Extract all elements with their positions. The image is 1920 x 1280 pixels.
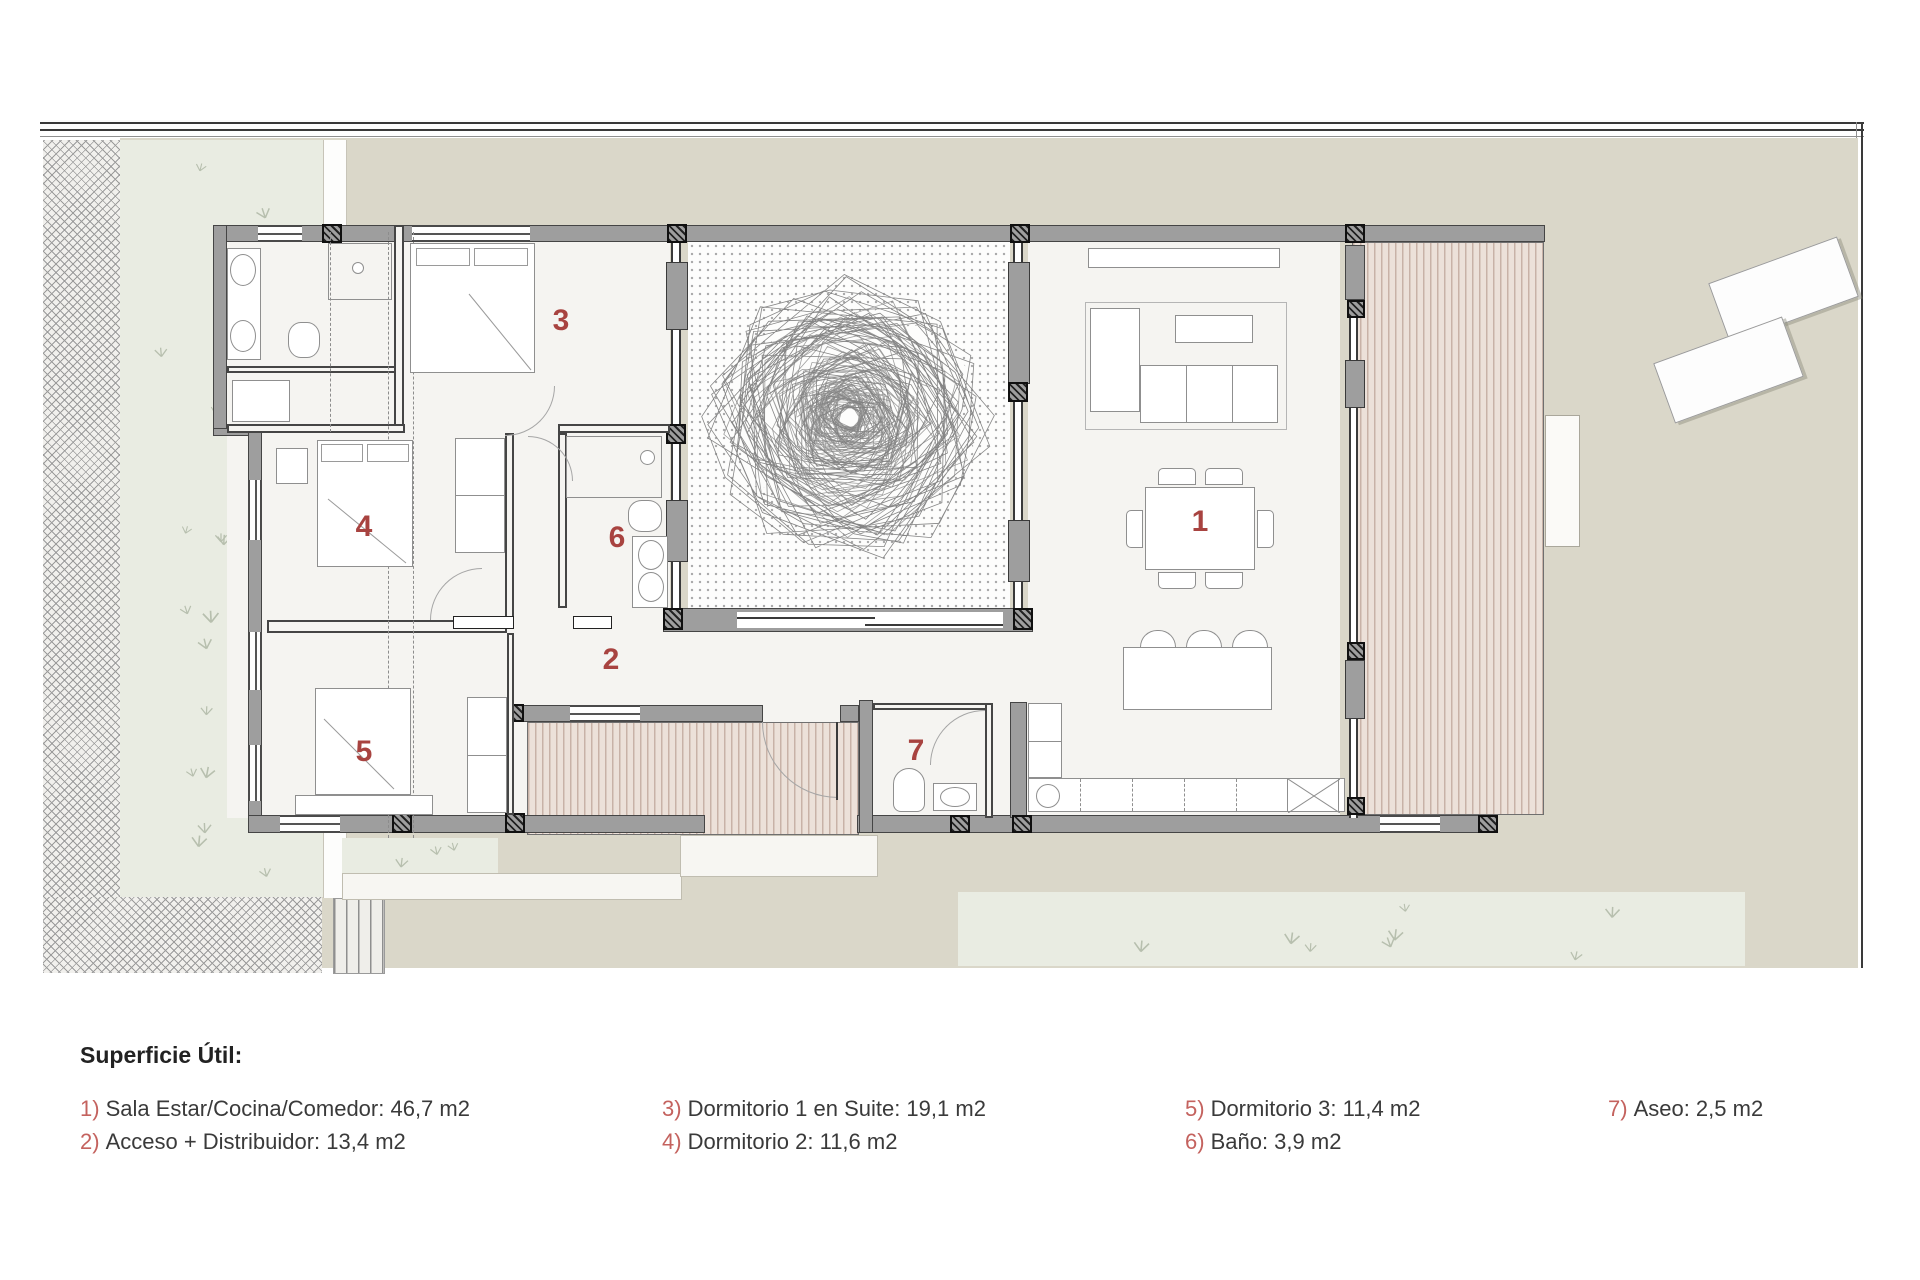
courtyard-slider-rail-1 bbox=[737, 617, 875, 619]
pillow-bedroom1-b bbox=[474, 248, 528, 266]
coffee-table bbox=[1175, 315, 1253, 343]
legend-entry-1: 1)Sala Estar/Cocina/Comedor: 46,7 m2 bbox=[80, 1096, 470, 1122]
partition-ensuite-bottom bbox=[227, 366, 396, 373]
sink-bath-2 bbox=[638, 572, 664, 602]
room-label-bedroom2: 4 bbox=[356, 510, 373, 544]
wardrobe-bedroom3 bbox=[467, 697, 507, 813]
wall-entry-stub bbox=[840, 705, 859, 722]
dining-chair-4 bbox=[1205, 572, 1243, 589]
column-courtyard-right-bottom bbox=[1013, 608, 1033, 630]
closet-ensuite bbox=[232, 380, 290, 422]
pillow-bedroom2-a bbox=[321, 444, 363, 462]
dining-chair-1 bbox=[1158, 468, 1196, 485]
legend-entry-5-text: Dormitorio 3: 11,4 m2 bbox=[1211, 1096, 1421, 1121]
mullion-living-right-1 bbox=[1345, 360, 1365, 408]
legend-entry-1-text: Sala Estar/Cocina/Comedor: 46,7 m2 bbox=[106, 1096, 470, 1121]
legend-entry-6-text: Baño: 3,9 m2 bbox=[1211, 1129, 1342, 1154]
legend-entry-2-number: 2) bbox=[80, 1129, 100, 1154]
door-leaf-entry bbox=[836, 722, 838, 800]
shower-bath bbox=[566, 436, 662, 498]
legend-entry-5: 5)Dormitorio 3: 11,4 m2 bbox=[1185, 1096, 1420, 1122]
pocket-door-hall bbox=[573, 616, 612, 629]
sofa-seats bbox=[1140, 365, 1278, 423]
room-label-bedroom3: 5 bbox=[356, 735, 373, 769]
column-top-1 bbox=[322, 224, 342, 243]
sink-wc bbox=[940, 787, 970, 807]
apron-entry bbox=[680, 835, 878, 877]
mullion-courtyard-right-1 bbox=[1008, 262, 1030, 384]
wardrobe-bedroom2 bbox=[455, 438, 505, 553]
column-bottom-3 bbox=[950, 815, 970, 833]
mullion-courtyard-left-2 bbox=[666, 500, 688, 562]
window-bedroom2-left bbox=[248, 480, 262, 540]
partition-hall-top-left bbox=[227, 424, 405, 433]
column-living-right-1 bbox=[1347, 300, 1365, 318]
mullion-courtyard-right-2 bbox=[1008, 520, 1030, 582]
entry-steps bbox=[333, 898, 385, 974]
kitchen-cooktop bbox=[1287, 778, 1339, 812]
site-boundary-top-line-1 bbox=[40, 122, 1864, 124]
column-top-4 bbox=[1345, 224, 1365, 243]
window-bedroom3-left-1 bbox=[248, 632, 262, 690]
lawn-right bbox=[958, 892, 1745, 966]
dining-chair-3 bbox=[1158, 572, 1196, 589]
column-courtyard-right-mid bbox=[1008, 382, 1028, 402]
column-top-2 bbox=[667, 224, 687, 243]
shower-drain-ensuite bbox=[352, 262, 364, 274]
wall-kitchen-pier bbox=[1010, 702, 1027, 818]
column-bottom-4 bbox=[1012, 815, 1032, 833]
site-boundary-top-line-3 bbox=[40, 136, 1864, 137]
column-courtyard-left-bottom bbox=[663, 608, 683, 630]
kitchen-tall-cabinet bbox=[1028, 703, 1062, 778]
dining-chair-6 bbox=[1257, 510, 1274, 548]
wall-living-right-top bbox=[1345, 245, 1365, 300]
legend-entry-3: 3)Dormitorio 1 en Suite: 19,1 m2 bbox=[662, 1096, 986, 1122]
partition-ensuite-right bbox=[394, 225, 404, 433]
mullion-living-right-2 bbox=[1345, 660, 1365, 719]
kitchen-counter-divider-4 bbox=[1236, 779, 1238, 811]
legend-entry-4-text: Dormitorio 2: 11,6 m2 bbox=[688, 1129, 898, 1154]
bed-bench-bedroom3 bbox=[295, 795, 433, 815]
pavement-strip-bottom bbox=[43, 897, 322, 973]
room-label-hall: 2 bbox=[603, 643, 620, 677]
site-boundary-top-line-2 bbox=[40, 129, 1864, 131]
pavement-strip-left bbox=[43, 140, 120, 973]
legend-entry-5-number: 5) bbox=[1185, 1096, 1205, 1121]
sideboard-living bbox=[1088, 248, 1280, 268]
toilet-wc bbox=[893, 768, 925, 812]
dining-chair-5 bbox=[1126, 510, 1143, 548]
deck-side-step bbox=[1545, 415, 1580, 547]
courtyard-slider-rail-2 bbox=[865, 624, 1003, 626]
legend-entry-4-number: 4) bbox=[662, 1129, 682, 1154]
partition-bedroom2-right bbox=[505, 433, 514, 621]
kitchen-island bbox=[1123, 647, 1272, 710]
legend-title: Superficie Útil: bbox=[80, 1042, 242, 1069]
legend-entry-4: 4)Dormitorio 2: 11,6 m2 bbox=[662, 1129, 897, 1155]
partition-bath-top bbox=[558, 424, 670, 433]
floor-plan-page: 1 2 3 4 5 6 7 Superficie Útil: 1)Sala Es… bbox=[0, 0, 1920, 1280]
kitchen-counter-divider-1 bbox=[1080, 779, 1082, 811]
sink-bath-1 bbox=[638, 540, 664, 570]
room-label-bedroom1: 3 bbox=[553, 304, 570, 338]
wall-left-upper bbox=[213, 225, 227, 436]
kitchen-counter-divider-3 bbox=[1184, 779, 1186, 811]
lawn-front bbox=[342, 838, 498, 873]
dining-chair-2 bbox=[1205, 468, 1243, 485]
deck-terrace-right bbox=[1352, 242, 1544, 815]
column-bottom-1 bbox=[392, 813, 412, 833]
legend-entry-1-number: 1) bbox=[80, 1096, 100, 1121]
pillow-bedroom2-b bbox=[367, 444, 409, 462]
site-boundary-right-line-2 bbox=[1861, 122, 1863, 968]
window-bedroom1-top bbox=[412, 225, 530, 242]
column-top-3 bbox=[1010, 224, 1030, 243]
legend-entry-3-number: 3) bbox=[662, 1096, 682, 1121]
column-living-right-2 bbox=[1347, 642, 1365, 660]
legend-entry-7-text: Aseo: 2,5 m2 bbox=[1634, 1096, 1764, 1121]
legend-entry-2: 2)Acceso + Distribuidor: 13,4 m2 bbox=[80, 1129, 406, 1155]
column-living-right-3 bbox=[1347, 797, 1365, 815]
sink-ensuite-1 bbox=[230, 254, 256, 286]
courtyard-tree bbox=[699, 268, 999, 568]
window-ensuite-top bbox=[258, 225, 302, 242]
pillow-bedroom1-a bbox=[416, 248, 470, 266]
legend-entry-2-text: Acceso + Distribuidor: 13,4 m2 bbox=[106, 1129, 406, 1154]
legend-entry-7-number: 7) bbox=[1608, 1096, 1628, 1121]
partition-bedroom3-right bbox=[507, 633, 514, 815]
legend-entry-3-text: Dormitorio 1 en Suite: 19,1 m2 bbox=[688, 1096, 986, 1121]
shower-head-bath bbox=[640, 450, 655, 465]
column-bottom-5 bbox=[1478, 815, 1498, 833]
window-entry bbox=[570, 705, 640, 722]
wall-wc-left bbox=[859, 700, 873, 833]
legend-entry-7: 7)Aseo: 2,5 m2 bbox=[1608, 1096, 1763, 1122]
partition-wc-right bbox=[985, 703, 993, 818]
nightstand-bedroom2 bbox=[276, 448, 308, 484]
grass-marks bbox=[342, 838, 498, 873]
window-bedroom3-left-2 bbox=[248, 745, 262, 801]
room-label-wc: 7 bbox=[908, 734, 925, 768]
partition-wc-top bbox=[873, 703, 993, 710]
toilet-ensuite bbox=[288, 322, 320, 358]
legend-entry-6-number: 6) bbox=[1185, 1129, 1205, 1154]
kitchen-sink bbox=[1036, 784, 1060, 808]
mullion-courtyard-left-1 bbox=[666, 262, 688, 330]
kitchen-counter-divider-2 bbox=[1132, 779, 1134, 811]
apron-front bbox=[342, 873, 682, 900]
room-label-bath: 6 bbox=[609, 521, 626, 555]
sink-ensuite-2 bbox=[230, 320, 256, 352]
grass-marks bbox=[958, 892, 1745, 966]
column-bottom-2 bbox=[505, 813, 525, 833]
window-living-bottom bbox=[1380, 815, 1440, 833]
legend-entry-6: 6)Baño: 3,9 m2 bbox=[1185, 1129, 1341, 1155]
room-label-living: 1 bbox=[1192, 505, 1209, 539]
sofa-chaise bbox=[1090, 308, 1140, 412]
toilet-bath bbox=[628, 500, 662, 532]
window-bedroom3-bottom bbox=[280, 815, 340, 833]
